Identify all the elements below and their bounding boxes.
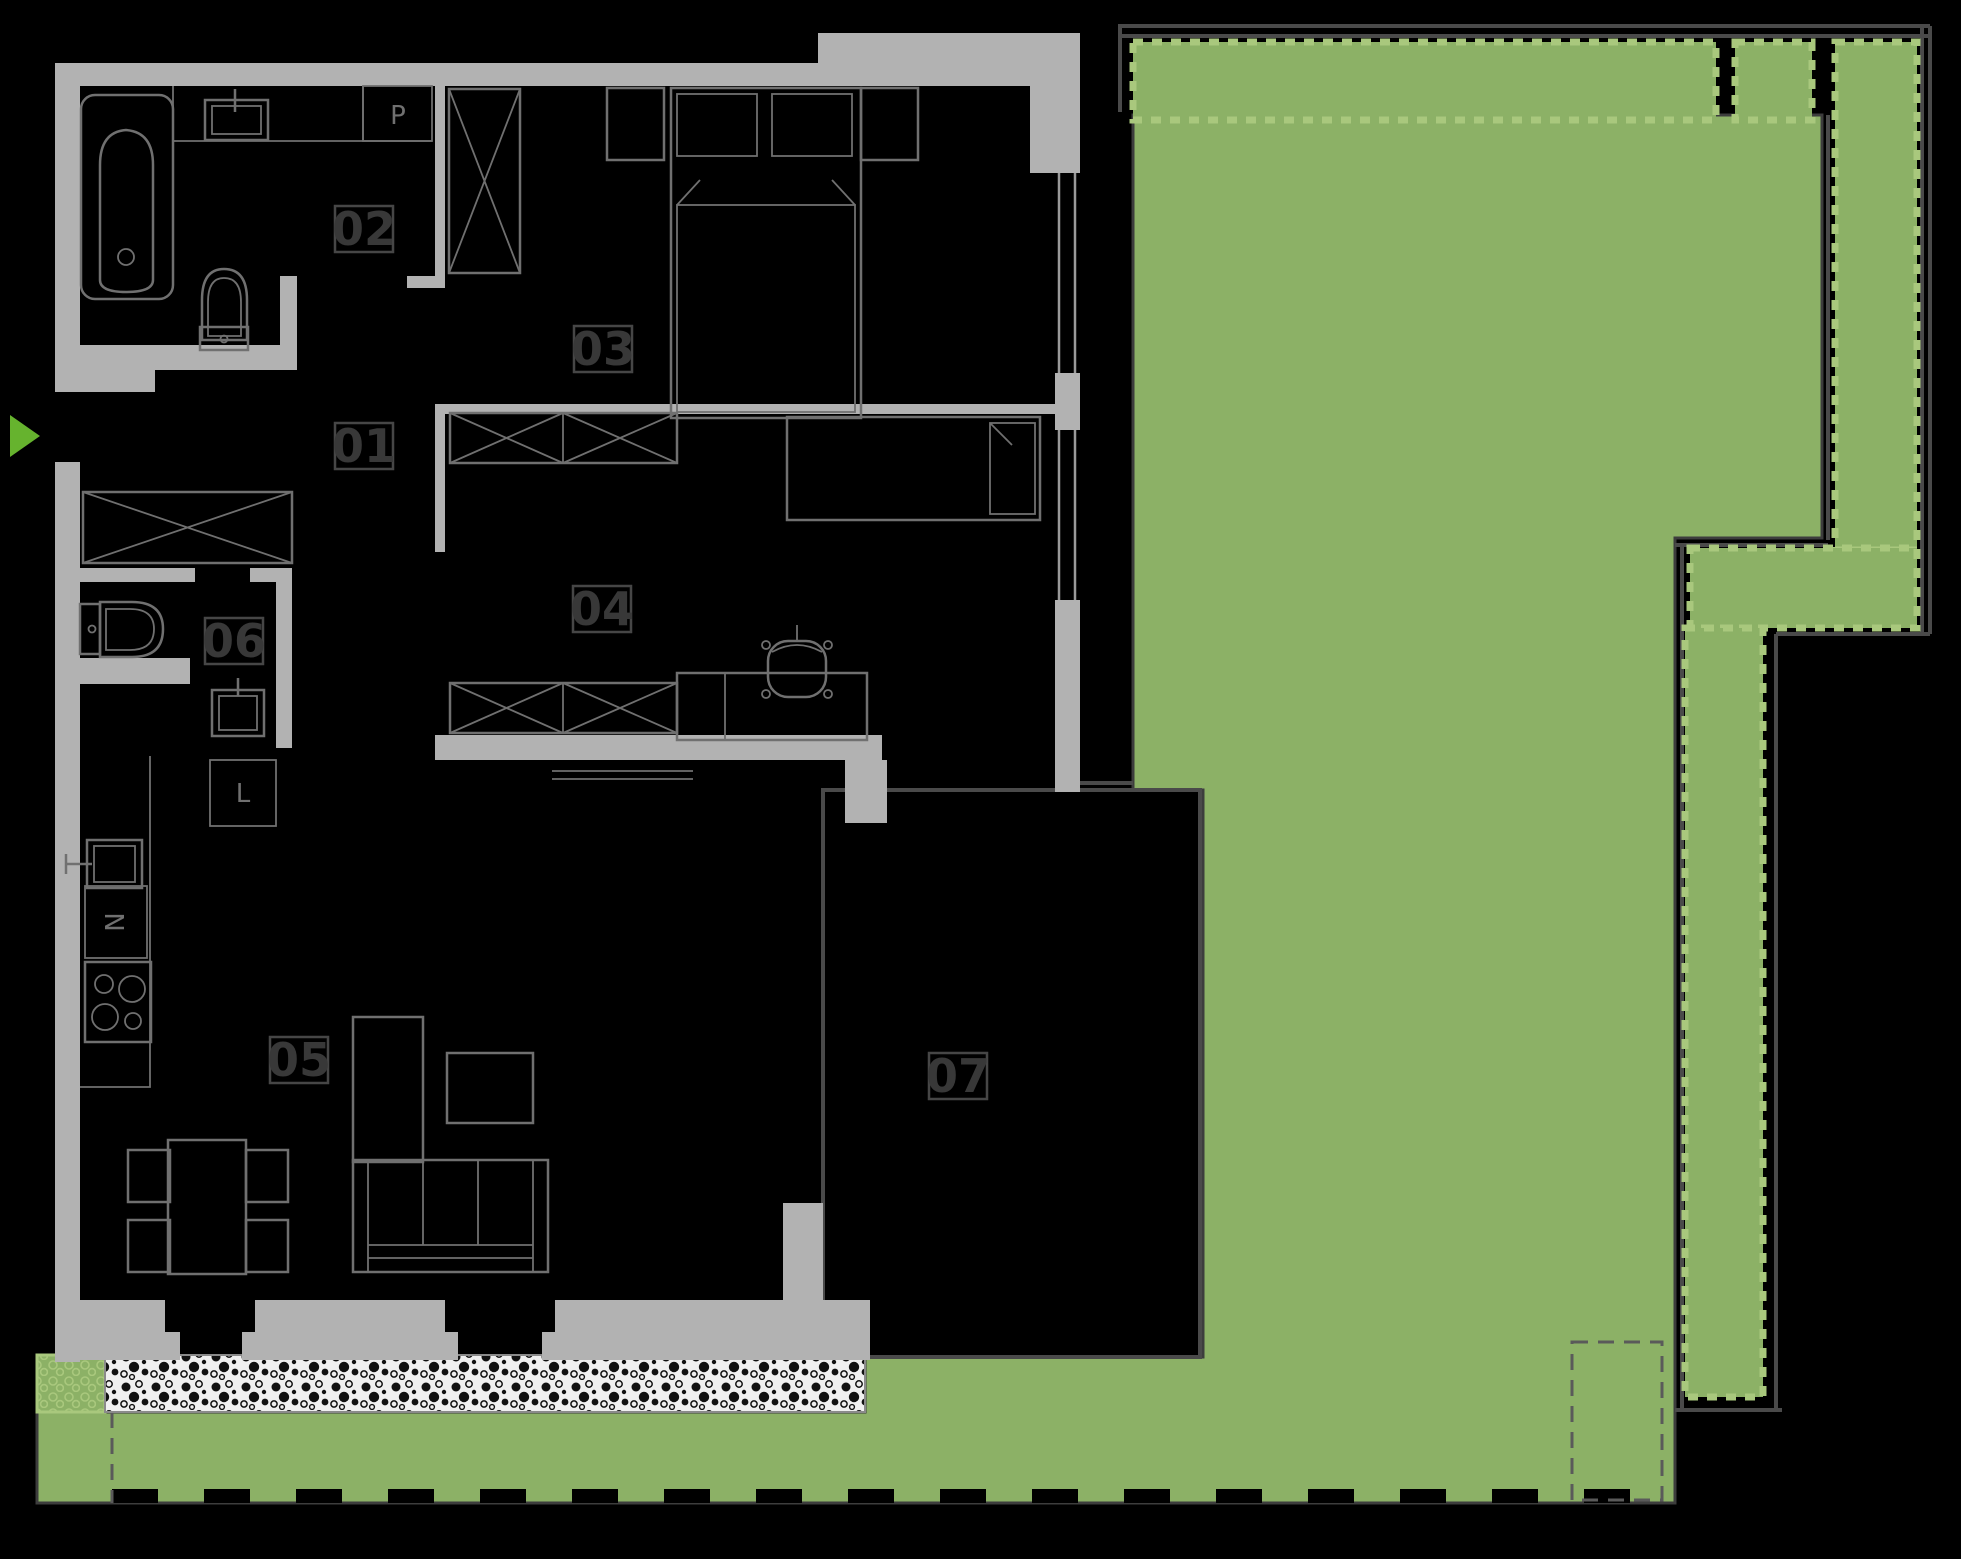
wall-bottom-sill3 <box>542 1332 870 1360</box>
wall-wc-south <box>80 658 190 684</box>
hedge-right-column-lower <box>1685 628 1763 1397</box>
hedge-square-top <box>1735 42 1812 120</box>
wall-bath-door-jamb-right <box>407 276 445 288</box>
room-label-03: 03 <box>571 322 635 376</box>
wall-bath-south-pad <box>80 370 155 392</box>
room-label-06: 06 <box>202 614 266 668</box>
hedge-right-elbow <box>1690 548 1917 628</box>
room-label-07: 07 <box>926 1049 990 1103</box>
wall-right-lower <box>1055 600 1080 792</box>
wall-bottom-sill2 <box>242 1332 458 1360</box>
wall-bath-bed-divider <box>435 86 445 276</box>
floorplan-svg: P <box>0 0 1961 1559</box>
wall-wc-east <box>276 568 292 748</box>
wall-left-upper <box>55 63 80 392</box>
wall-bath-south <box>80 345 290 370</box>
wall-left-lower <box>55 462 80 1362</box>
hedge-right-column-upper <box>1835 42 1917 550</box>
hedge-top-strip <box>1133 42 1716 120</box>
wall-wc-north-left <box>80 568 195 582</box>
paved-path <box>105 1355 865 1412</box>
wall-bottom-sill1 <box>80 1332 180 1360</box>
wall-hall-east <box>435 404 445 552</box>
terrace <box>823 790 1200 1357</box>
hedge-small-square <box>37 1355 105 1412</box>
oven-label: N <box>101 912 131 931</box>
wall-bottom-seg3 <box>555 1300 870 1332</box>
wall-terrace-step <box>845 760 887 823</box>
wall-top <box>55 63 1080 86</box>
room-label-05: 05 <box>267 1033 331 1087</box>
wall-right-mid <box>1055 373 1080 430</box>
wall-right-corner-mass <box>1030 43 1080 173</box>
room-label-04: 04 <box>570 582 634 636</box>
room-label-02: 02 <box>332 202 396 256</box>
fridge-label: L <box>236 779 251 809</box>
wall-bottom-seg1 <box>80 1300 165 1332</box>
washing-machine-label: P <box>390 101 406 131</box>
wall-bottom-seg2 <box>255 1300 445 1332</box>
room-label-01: 01 <box>332 419 396 473</box>
